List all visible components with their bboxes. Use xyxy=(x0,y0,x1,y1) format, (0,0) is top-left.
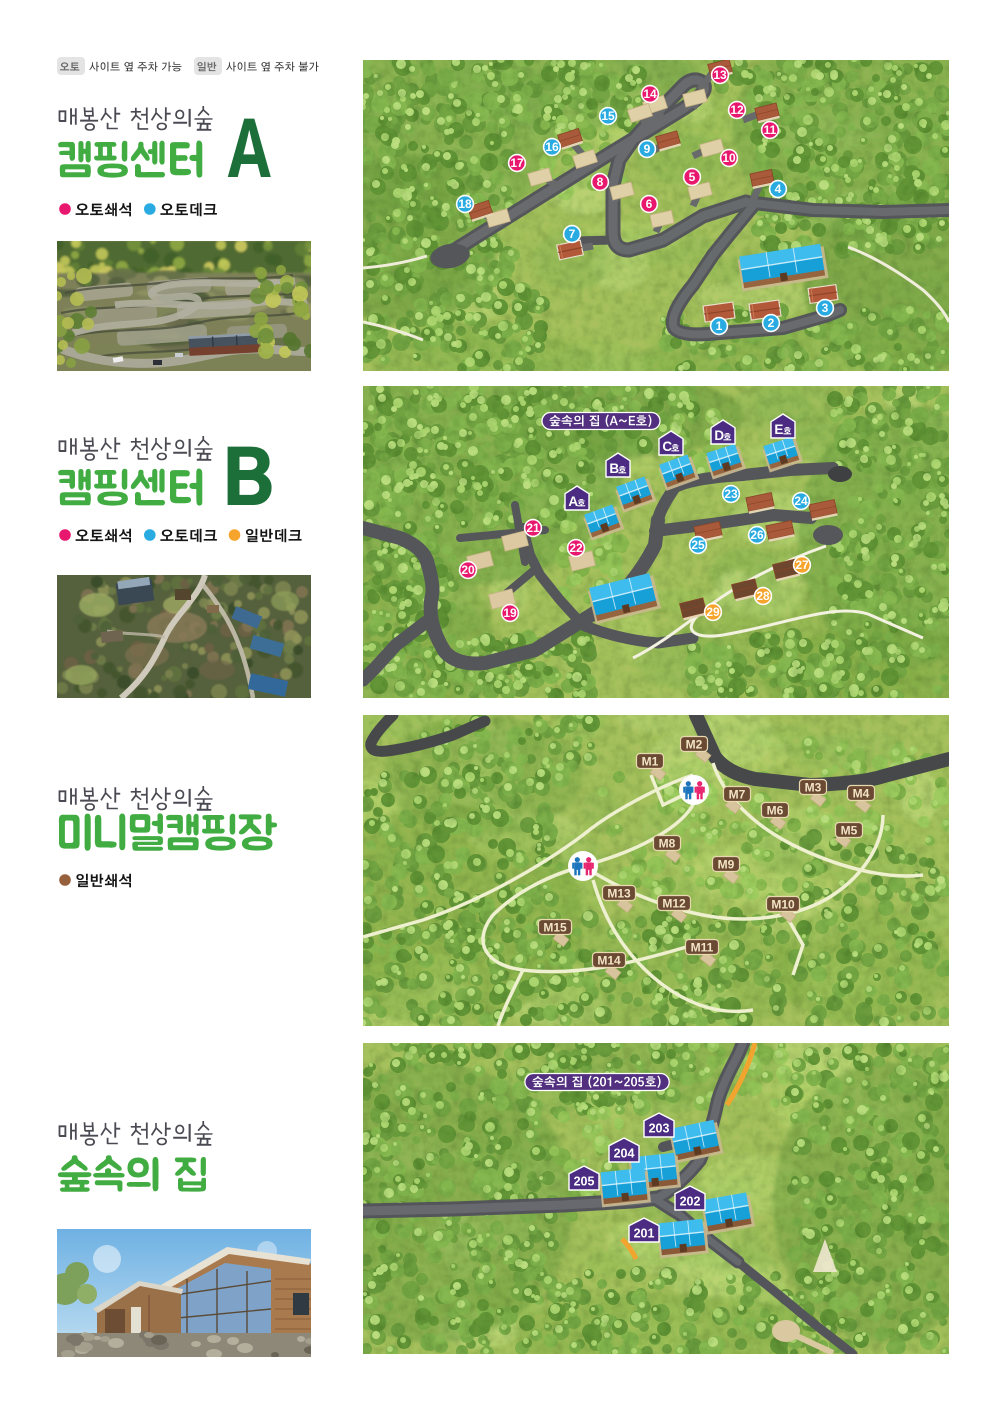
svg-text:21: 21 xyxy=(526,521,540,535)
svg-text:4: 4 xyxy=(775,182,782,196)
svg-text:M14: M14 xyxy=(597,953,621,967)
svg-text:8: 8 xyxy=(597,175,604,189)
svg-text:B: B xyxy=(609,461,619,476)
svg-text:M15: M15 xyxy=(543,920,567,934)
svg-text:M11: M11 xyxy=(691,940,714,954)
svg-text:M12: M12 xyxy=(662,896,686,910)
svg-text:M9: M9 xyxy=(718,857,735,871)
svg-text:205: 205 xyxy=(574,1175,595,1189)
svg-text:10: 10 xyxy=(722,151,736,165)
svg-text:19: 19 xyxy=(503,606,517,620)
svg-text:28: 28 xyxy=(756,589,770,603)
svg-text:7: 7 xyxy=(569,227,576,241)
svg-text:M3: M3 xyxy=(805,780,822,794)
svg-text:M2: M2 xyxy=(686,737,703,751)
svg-text:16: 16 xyxy=(545,140,559,154)
svg-text:M13: M13 xyxy=(607,886,631,900)
svg-text:23: 23 xyxy=(724,487,738,501)
svg-text:M7: M7 xyxy=(729,787,746,801)
svg-text:26: 26 xyxy=(750,528,764,542)
svg-text:202: 202 xyxy=(680,1195,701,1209)
svg-text:M1: M1 xyxy=(642,754,659,768)
svg-text:3: 3 xyxy=(822,301,829,315)
svg-text:D: D xyxy=(714,428,724,443)
svg-text:1: 1 xyxy=(716,319,723,333)
svg-text:27: 27 xyxy=(795,558,809,572)
svg-text:18: 18 xyxy=(458,197,472,211)
svg-text:C: C xyxy=(662,439,672,454)
svg-text:M4: M4 xyxy=(853,786,870,800)
svg-text:M6: M6 xyxy=(767,803,784,817)
svg-text:9: 9 xyxy=(644,142,651,156)
svg-text:201: 201 xyxy=(634,1227,655,1241)
svg-text:13: 13 xyxy=(713,68,727,82)
svg-text:A: A xyxy=(568,494,578,509)
svg-text:24: 24 xyxy=(794,494,808,508)
svg-text:203: 203 xyxy=(649,1122,670,1136)
svg-text:12: 12 xyxy=(730,103,744,117)
svg-text:204: 204 xyxy=(614,1147,635,1161)
svg-text:22: 22 xyxy=(569,541,583,555)
svg-text:6: 6 xyxy=(646,197,653,211)
svg-text:M10: M10 xyxy=(771,897,795,911)
svg-text:17: 17 xyxy=(510,156,524,170)
svg-text:5: 5 xyxy=(689,170,696,184)
svg-text:E: E xyxy=(774,422,783,437)
svg-text:M5: M5 xyxy=(841,823,858,837)
svg-text:15: 15 xyxy=(601,109,615,123)
svg-text:11: 11 xyxy=(764,123,777,137)
svg-text:14: 14 xyxy=(643,87,657,101)
svg-text:2: 2 xyxy=(768,316,775,330)
svg-text:29: 29 xyxy=(706,605,720,619)
svg-text:M8: M8 xyxy=(659,836,676,850)
svg-text:25: 25 xyxy=(691,538,705,552)
svg-text:20: 20 xyxy=(461,563,475,577)
